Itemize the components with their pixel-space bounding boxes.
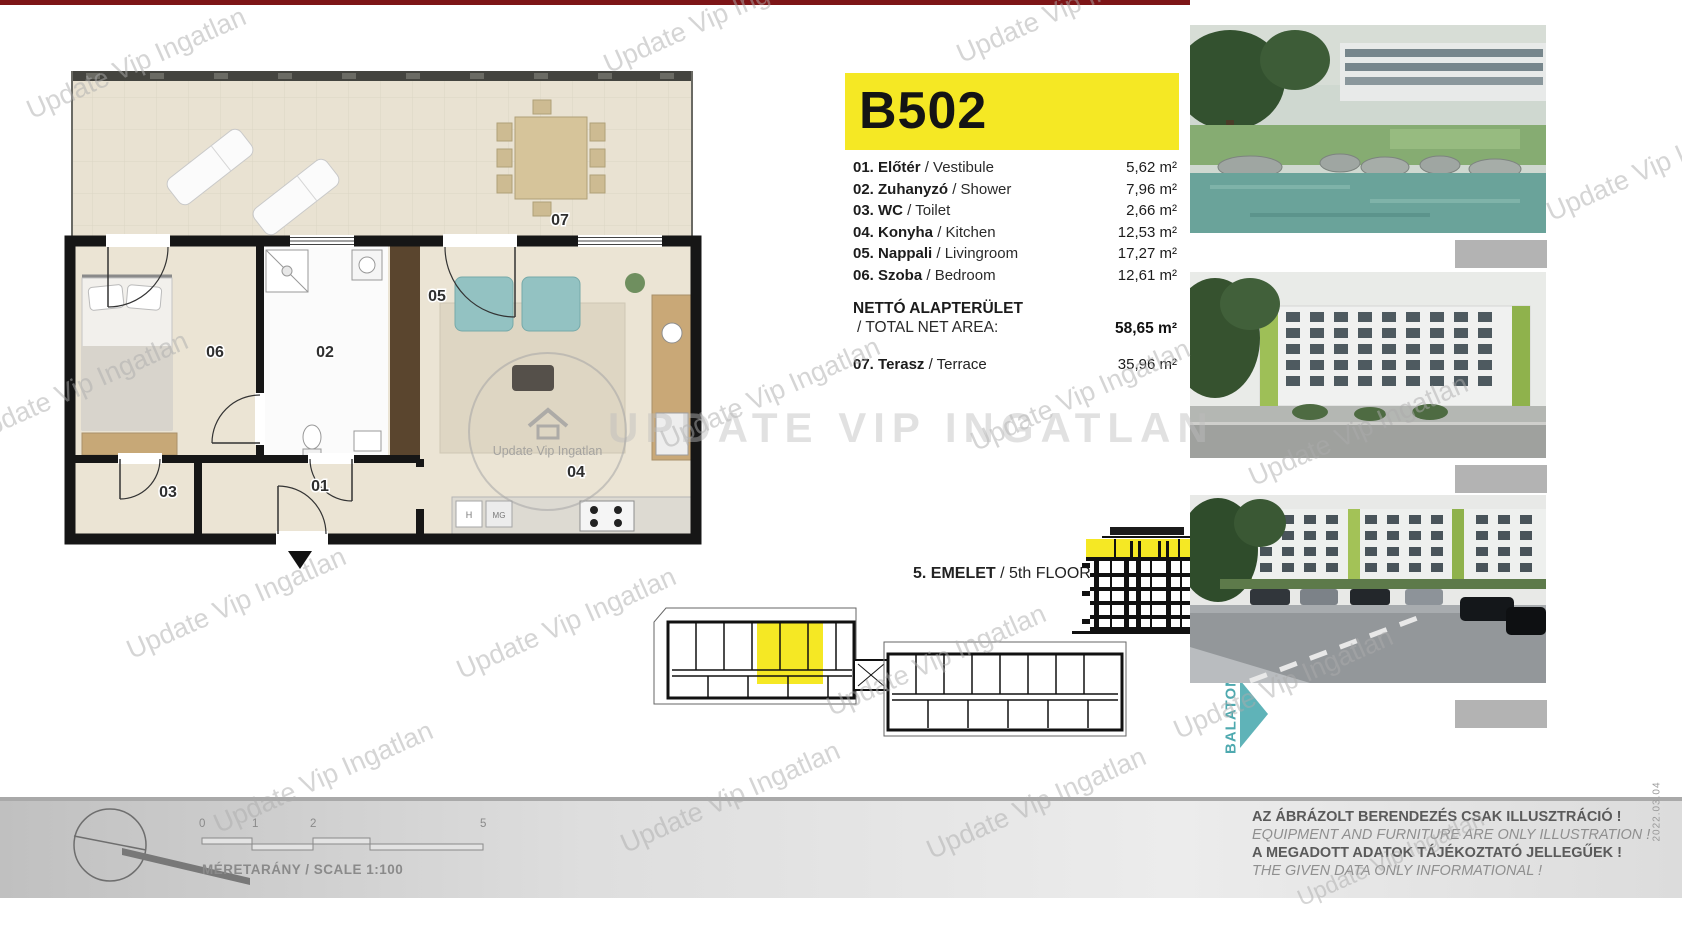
flyer-page: H MG (0, 0, 1682, 925)
room-name-hu: 02. Zuhanyzó (853, 181, 948, 198)
net-area-block: NETTÓ ALAPTERÜLET / TOTAL NET AREA: 58,6… (845, 300, 1179, 338)
room-area: 17,27 m² (1118, 243, 1177, 265)
watermark: Update Vip Ingatlan (1542, 103, 1682, 228)
net-area-label-hu: NETTÓ ALAPTERÜLET (853, 300, 1179, 318)
photo-lakeside-render (1190, 25, 1546, 233)
room-name-en: / Shower (948, 181, 1011, 198)
terrace-area-value: 35,96 m² (1118, 356, 1177, 373)
room-label-02: 02 (316, 344, 334, 361)
terrace-row: 07. Terasz / Terrace 35,96 m² (845, 356, 1179, 373)
room-area: 2,66 m² (1126, 200, 1177, 222)
entrance-arrow-icon (288, 551, 312, 569)
disclaimer-line: EQUIPMENT AND FURNITURE ARE ONLY ILLUSTR… (1252, 826, 1650, 844)
scale-label: MÉRETARÁNY / SCALE 1:100 (202, 862, 403, 877)
bedroom-wardrobe (82, 433, 177, 455)
room-name-en: / Livingroom (932, 245, 1018, 262)
unit-info-panel: B502 01. Előtér / Vestibule 5,62 m² 02. … (845, 73, 1179, 373)
photo-divider-bar (1455, 240, 1547, 268)
room-label-03: 03 (159, 484, 177, 501)
room-row: 04. Konyha / Kitchen 12,53 m² (845, 222, 1179, 244)
bed (82, 276, 172, 430)
room-name-en: / Toilet (903, 202, 950, 219)
room-area: 7,96 m² (1126, 179, 1177, 201)
room-name-hu: 06. Szoba (853, 267, 922, 284)
photo-parking-render (1190, 495, 1546, 683)
room-row: 03. WC / Toilet 2,66 m² (845, 200, 1179, 222)
room-label-04: 04 (567, 464, 585, 481)
room-row: 06. Szoba / Bedroom 12,61 m² (845, 265, 1179, 287)
floor-label-hu: 5. EMELET (913, 565, 996, 582)
scale-tick: 2 (310, 818, 316, 830)
scale-tick: 0 (199, 818, 205, 830)
room-area: 12,53 m² (1118, 222, 1177, 244)
photo-divider-bar (1455, 465, 1547, 493)
room-label-06: 06 (206, 344, 224, 361)
sofa (455, 277, 513, 331)
watermark: Update Vip Ingatlan (452, 561, 681, 686)
room-name-hu: 01. Előtér (853, 159, 921, 176)
highlighted-unit (757, 622, 823, 684)
key-plan-overview (648, 582, 1138, 742)
coffee-table (512, 365, 554, 391)
room-list: 01. Előtér / Vestibule 5,62 m² 02. Zuhan… (845, 157, 1179, 286)
appliance-label-h: H (466, 510, 473, 520)
room-name-hu: 03. WC (853, 202, 903, 219)
terrace-name-hu: 07. Terasz (853, 356, 924, 373)
room-name-en: / Kitchen (933, 224, 996, 241)
photo-divider-bar (1455, 700, 1547, 728)
room-row: 05. Nappali / Livingroom 17,27 m² (845, 243, 1179, 265)
wardrobe (390, 246, 420, 457)
scale-bar (195, 828, 495, 858)
unit-header: B502 (845, 73, 1179, 150)
terrace-name-en: / Terrace (924, 356, 986, 373)
unit-id: B502 (859, 81, 987, 141)
scale-tick: 5 (480, 818, 486, 830)
terrace-area (72, 71, 692, 241)
room-label-01: 01 (311, 478, 329, 495)
disclaimer-line: A MEGADOTT ADATOK TÁJÉKOZTATÓ JELLEGŰEK … (1252, 844, 1650, 862)
photo-street-render (1190, 272, 1546, 458)
room-row: 02. Zuhanyzó / Shower 7,96 m² (845, 179, 1179, 201)
balaton-label: BALATON (1223, 670, 1240, 760)
plant (625, 273, 645, 293)
room-name-hu: 05. Nappali (853, 245, 932, 262)
room-area: 5,62 m² (1126, 157, 1177, 179)
sofa (522, 277, 580, 331)
floor-level-label: 5. EMELET / 5th FLOOR (913, 565, 1091, 583)
watermark: Update Vip Ingatlan (952, 0, 1181, 70)
room-row: 01. Előtér / Vestibule 5,62 m² (845, 157, 1179, 179)
disclaimer-line: AZ ÁBRÁZOLT BERENDEZÉS CSAK ILLUSZTRÁCIÓ… (1252, 808, 1650, 826)
room-name-en: / Vestibule (921, 159, 994, 176)
balaton-arrow-icon (1240, 680, 1268, 748)
room-label-07: 07 (551, 212, 569, 229)
disclaimer-block: AZ ÁBRÁZOLT BERENDEZÉS CSAK ILLUSZTRÁCIÓ… (1252, 808, 1650, 880)
date-stamp: 2022.03.04 (1652, 767, 1663, 857)
disclaimer-line: THE GIVEN DATA ONLY INFORMATIONAL ! (1252, 862, 1650, 880)
room-label-05: 05 (428, 288, 446, 305)
room-area: 12,61 m² (1118, 265, 1177, 287)
appliance-label-mg: MG (493, 511, 506, 520)
net-area-value: 58,65 m² (1115, 320, 1177, 338)
room-name-en: / Bedroom (922, 267, 995, 284)
top-red-bar (0, 0, 1190, 5)
room-name-hu: 04. Konyha (853, 224, 933, 241)
apartment-floor-plan: H MG (60, 65, 710, 575)
scale-tick: 1 (252, 818, 258, 830)
